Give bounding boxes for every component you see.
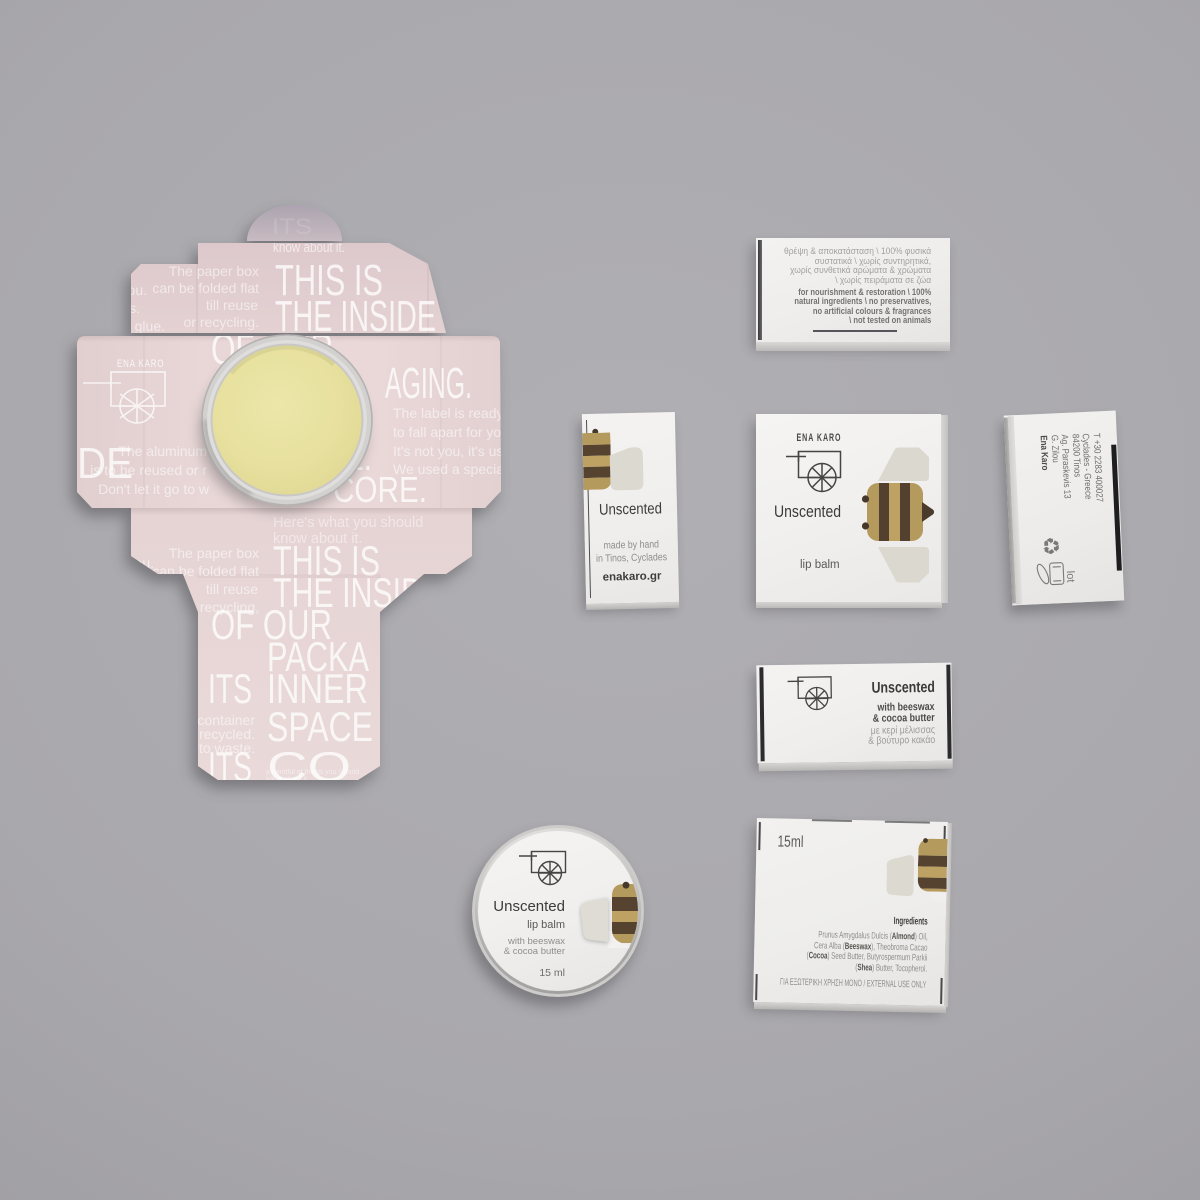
svg-text:know about it.: know about it. <box>273 240 345 256</box>
svg-text:ou.: ou. <box>128 282 147 298</box>
svg-text:ENA KARO: ENA KARO <box>117 358 164 371</box>
svg-text:The paper box: The paper box <box>169 263 259 279</box>
svg-text:to waste.: to waste. <box>199 740 255 756</box>
svg-text:to fall apart for you: to fall apart for you <box>393 424 509 440</box>
svg-text:Here's what you should: Here's what you should <box>273 515 423 531</box>
svg-text:lot: lot <box>1064 571 1077 583</box>
svg-text:or recycling.: or recycling. <box>184 314 259 330</box>
svg-text:s.: s. <box>129 300 140 316</box>
svg-text:ou.: ou. <box>135 555 154 571</box>
svg-text:The aluminum: The aluminum <box>118 443 207 459</box>
svg-text:can be folded flat: can be folded flat <box>152 563 259 579</box>
svg-text:till reuse: till reuse <box>206 297 258 313</box>
svg-text:Don't let it go to w: Don't let it go to w <box>98 481 210 497</box>
svg-text:ITS: ITS <box>272 214 312 239</box>
svg-text:l glue.: l glue. <box>128 318 165 334</box>
svg-text:till reuse: till reuse <box>206 581 258 597</box>
svg-text:The label is ready: The label is ready <box>393 405 504 421</box>
svg-text:The paper box: The paper box <box>169 545 259 561</box>
svg-text:It's not you, it's us.: It's not you, it's us. <box>393 443 507 459</box>
svg-text:know about it: know about it <box>266 776 307 783</box>
svg-text:THE INSIDE: THE INSIDE <box>275 292 436 341</box>
svg-text:a handful of things you should: a handful of things you should <box>266 769 359 776</box>
svg-text:AGING.: AGING. <box>385 359 472 408</box>
svg-text:can be folded flat: can be folded flat <box>152 280 259 296</box>
svg-text:is to be reused or r: is to be reused or r <box>90 462 207 478</box>
svg-text:♻: ♻ <box>1038 536 1064 557</box>
svg-text:ITS: ITS <box>208 665 252 712</box>
svg-text:CO: CO <box>267 743 351 790</box>
